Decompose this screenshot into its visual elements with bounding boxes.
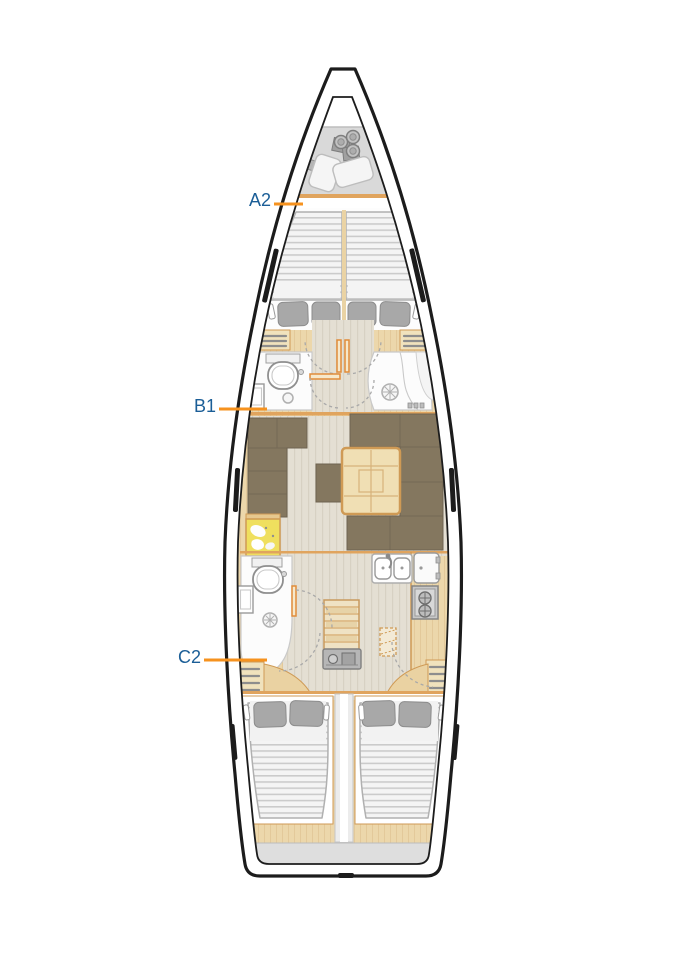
stove-icon	[412, 586, 438, 619]
shower-drain-icon	[263, 613, 277, 627]
anchor-locker	[230, 127, 460, 196]
interior	[220, 60, 470, 870]
aft-cabin-left	[240, 696, 333, 824]
center-divider	[335, 694, 353, 842]
sink-icon	[238, 586, 253, 613]
yacht-deck-plan: A2 B1 C2	[0, 0, 679, 960]
forward-shower-right	[368, 352, 433, 410]
shower-drain-icon	[382, 384, 398, 400]
saloon	[246, 414, 450, 556]
pillow	[278, 301, 309, 326]
nav-chart-table	[246, 514, 280, 556]
door-leaf	[337, 340, 341, 372]
callout-label-b1: B1	[194, 396, 216, 416]
sheet-left	[274, 284, 340, 298]
galley-sink-icon	[372, 554, 412, 583]
deck-plan-canvas: A2 B1 C2	[0, 0, 679, 960]
pillow	[380, 301, 411, 326]
toilet-icon	[252, 558, 287, 593]
pillow	[399, 701, 432, 727]
callout-label-c2: C2	[178, 647, 201, 667]
pillow	[254, 701, 287, 727]
door-leaf	[292, 586, 296, 616]
sheet-right	[348, 284, 412, 298]
reading-light-icon	[323, 705, 329, 720]
stern-keel-mark	[338, 873, 354, 878]
berth-center-trim	[342, 210, 346, 330]
chart-map	[246, 519, 280, 556]
engine-icon	[323, 649, 361, 669]
folding-seat-outline	[380, 628, 396, 656]
fridge-icon	[414, 553, 440, 583]
reading-light-icon	[359, 705, 365, 720]
ottoman	[316, 464, 344, 502]
drain-icon	[283, 393, 293, 403]
callout-label-a2: A2	[249, 190, 271, 210]
companionway-steps	[324, 600, 359, 653]
vent-icon	[408, 403, 424, 408]
pillow	[290, 700, 324, 726]
saloon-table	[342, 448, 400, 514]
pillow	[362, 700, 396, 726]
door-leaf	[345, 340, 349, 372]
door-leaf	[310, 374, 340, 379]
